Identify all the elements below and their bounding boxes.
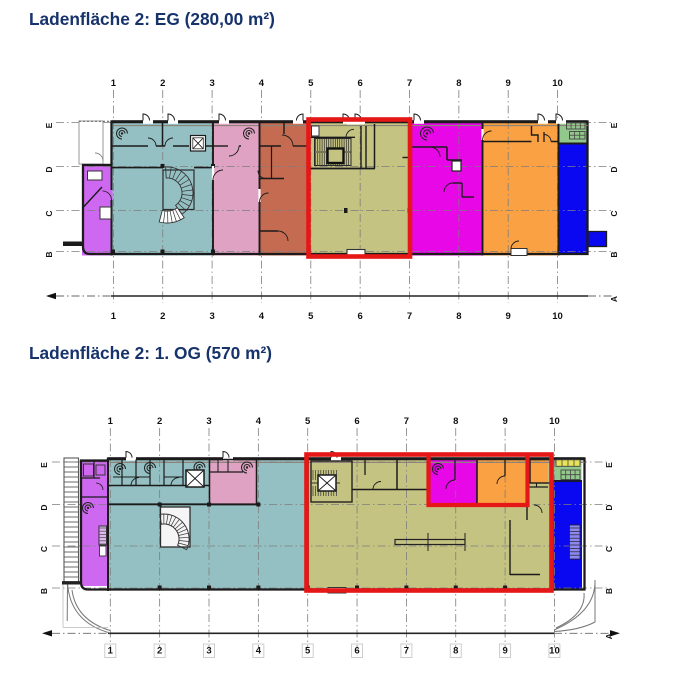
svg-text:4: 4 <box>259 78 265 89</box>
svg-text:8: 8 <box>456 311 461 322</box>
svg-text:1: 1 <box>111 311 117 322</box>
svg-text:4: 4 <box>256 416 262 427</box>
svg-text:5: 5 <box>308 311 314 322</box>
svg-text:2: 2 <box>157 646 162 657</box>
svg-text:5: 5 <box>308 78 314 89</box>
svg-text:D: D <box>604 504 614 510</box>
svg-text:B: B <box>44 251 54 257</box>
svg-text:8: 8 <box>456 78 461 89</box>
svg-text:9: 9 <box>502 646 507 657</box>
svg-text:9: 9 <box>506 78 511 89</box>
svg-text:10: 10 <box>549 416 560 427</box>
svg-text:3: 3 <box>206 416 211 427</box>
svg-text:3: 3 <box>209 78 214 89</box>
svg-text:D: D <box>44 166 54 172</box>
svg-text:2: 2 <box>160 311 165 322</box>
svg-text:3: 3 <box>206 646 211 657</box>
svg-text:B: B <box>604 588 614 594</box>
svg-text:D: D <box>39 504 49 510</box>
svg-text:E: E <box>39 462 49 468</box>
svg-text:2: 2 <box>157 416 162 427</box>
svg-text:5: 5 <box>305 646 311 657</box>
svg-text:7: 7 <box>404 646 409 657</box>
svg-text:B: B <box>39 588 49 594</box>
svg-text:C: C <box>44 210 54 216</box>
svg-text:1: 1 <box>108 416 114 427</box>
svg-text:6: 6 <box>354 416 359 427</box>
svg-text:5: 5 <box>305 416 311 427</box>
svg-text:E: E <box>609 122 619 128</box>
svg-text:6: 6 <box>354 646 359 657</box>
svg-text:4: 4 <box>256 646 262 657</box>
svg-text:D: D <box>609 166 619 172</box>
svg-text:6: 6 <box>358 78 363 89</box>
svg-text:C: C <box>39 546 49 552</box>
svg-text:4: 4 <box>259 311 265 322</box>
svg-text:B: B <box>609 251 619 257</box>
svg-text:1: 1 <box>108 646 114 657</box>
svg-text:7: 7 <box>407 78 412 89</box>
svg-text:1: 1 <box>111 78 117 89</box>
svg-text:C: C <box>609 210 619 216</box>
svg-text:2: 2 <box>160 78 165 89</box>
svg-text:C: C <box>604 546 614 552</box>
svg-text:Ladenfläche 2: 1. OG (570 m²): Ladenfläche 2: 1. OG (570 m²) <box>29 343 272 363</box>
svg-text:10: 10 <box>549 646 560 657</box>
svg-text:A: A <box>609 296 619 302</box>
svg-text:Ladenfläche 2: EG (280,00 m²): Ladenfläche 2: EG (280,00 m²) <box>29 9 275 29</box>
svg-text:3: 3 <box>209 311 214 322</box>
svg-text:10: 10 <box>552 311 563 322</box>
svg-text:6: 6 <box>358 311 363 322</box>
svg-text:E: E <box>604 462 614 468</box>
svg-text:E: E <box>44 122 54 128</box>
svg-text:7: 7 <box>404 416 409 427</box>
svg-text:9: 9 <box>502 416 507 427</box>
svg-text:7: 7 <box>407 311 412 322</box>
svg-text:9: 9 <box>506 311 511 322</box>
svg-text:10: 10 <box>552 78 563 89</box>
svg-text:8: 8 <box>453 416 458 427</box>
svg-text:8: 8 <box>453 646 458 657</box>
svg-text:A: A <box>604 633 614 639</box>
